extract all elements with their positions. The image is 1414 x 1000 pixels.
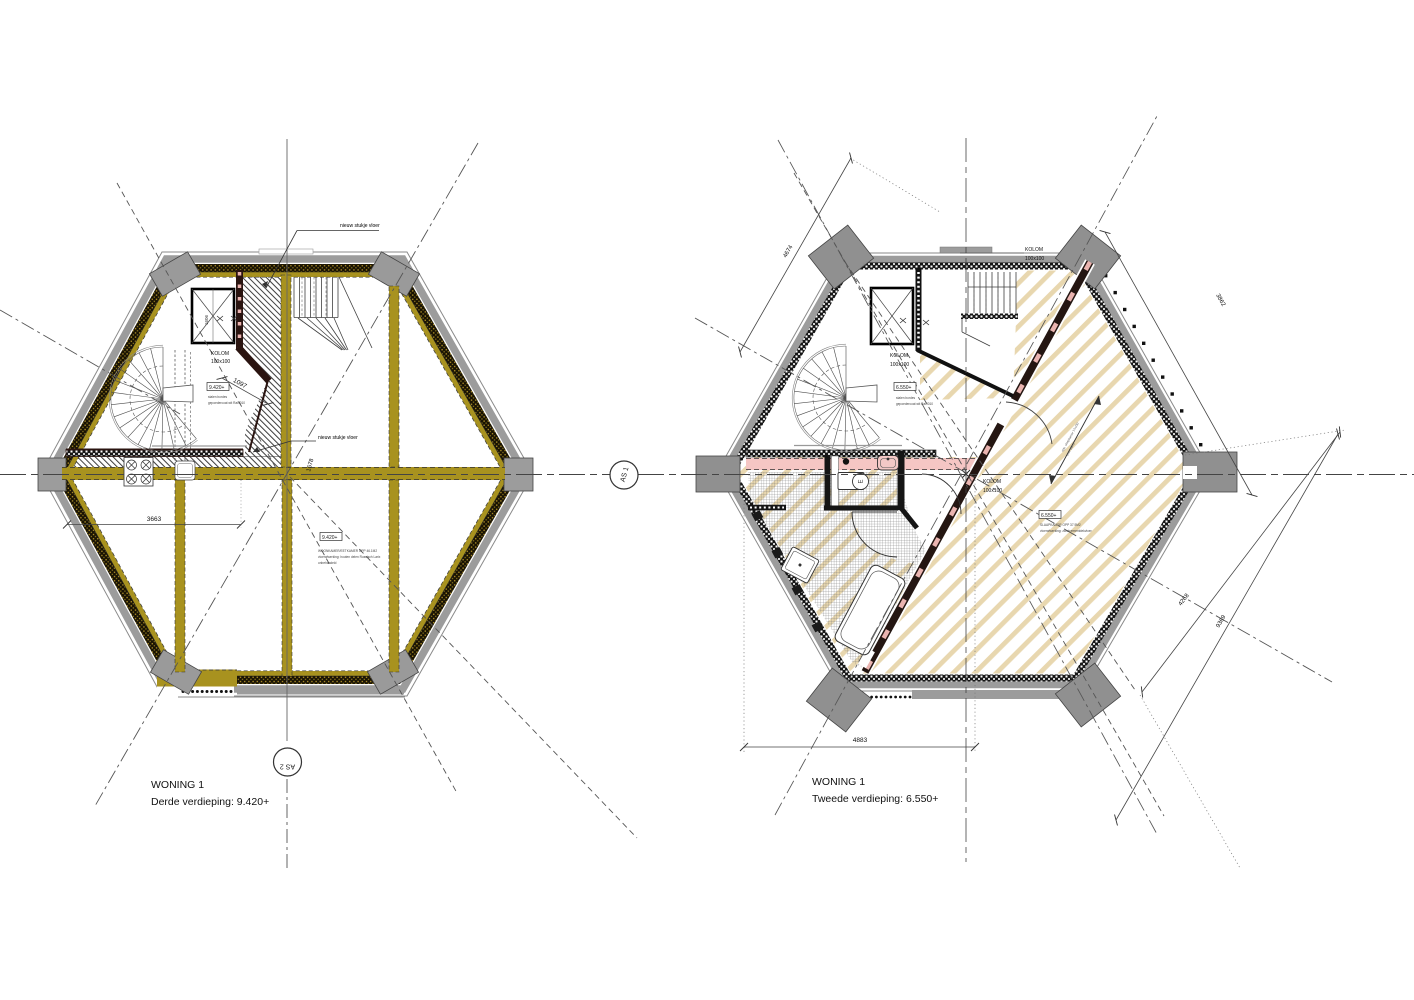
svg-text:1606: 1606: [204, 314, 209, 325]
svg-text:E: E: [859, 479, 865, 483]
svg-text:nieuw stukje vloer: nieuw stukje vloer: [340, 223, 380, 229]
svg-text:WONING 1: WONING 1: [151, 779, 204, 791]
svg-text:4883: 4883: [853, 737, 868, 744]
svg-text:gepoedercoat wit Ral9010: gepoedercoat wit Ral9010: [208, 401, 245, 405]
svg-text:AS 2: AS 2: [280, 763, 295, 770]
svg-text:6.550+: 6.550+: [1041, 513, 1057, 519]
svg-text:KOLOM: KOLOM: [890, 353, 908, 359]
svg-text:Tweede verdieping: 6.550+: Tweede verdieping: 6.550+: [812, 793, 938, 805]
svg-text:KOLOM: KOLOM: [983, 479, 1001, 485]
svg-text:100x100: 100x100: [1025, 256, 1044, 262]
svg-text:9.420+: 9.420+: [322, 535, 338, 541]
svg-text:nieuw stukje vloer: nieuw stukje vloer: [318, 435, 358, 441]
svg-text:100x100: 100x100: [211, 359, 230, 365]
svg-text:6.550+: 6.550+: [896, 385, 912, 391]
svg-text:vloerafwerking: houten delen R: vloerafwerking: houten delen Russisch La…: [318, 555, 381, 559]
svg-text:100x100: 100x100: [983, 488, 1002, 494]
svg-text:Derde verdieping: 9.420+: Derde verdieping: 9.420+: [151, 796, 269, 808]
svg-text:9.420+: 9.420+: [209, 385, 225, 391]
svg-text:stalen bordes: stalen bordes: [896, 396, 916, 400]
svg-text:vloerafwerking: zandcementdekv: vloerafwerking: zandcementdekvloer: [1040, 529, 1093, 533]
svg-text:gepoedercoat wit Ral9010: gepoedercoat wit Ral9010: [896, 402, 933, 406]
svg-text:KOLOM: KOLOM: [1025, 247, 1043, 253]
svg-text:WOONKAMER/EETKAMER OPP 46.1M2: WOONKAMER/EETKAMER OPP 46.1M2: [318, 549, 377, 553]
svg-text:KOLOM: KOLOM: [211, 351, 229, 357]
svg-text:WONING 1: WONING 1: [812, 776, 865, 788]
svg-text:3663: 3663: [147, 516, 162, 523]
svg-text:100x100: 100x100: [890, 362, 909, 368]
svg-text:onbehandeld: onbehandeld: [318, 561, 337, 565]
svg-text:SLAAPKAMER OPP 37.9M2: SLAAPKAMER OPP 37.9M2: [1040, 523, 1081, 527]
svg-text:stalen bordes: stalen bordes: [208, 395, 228, 399]
